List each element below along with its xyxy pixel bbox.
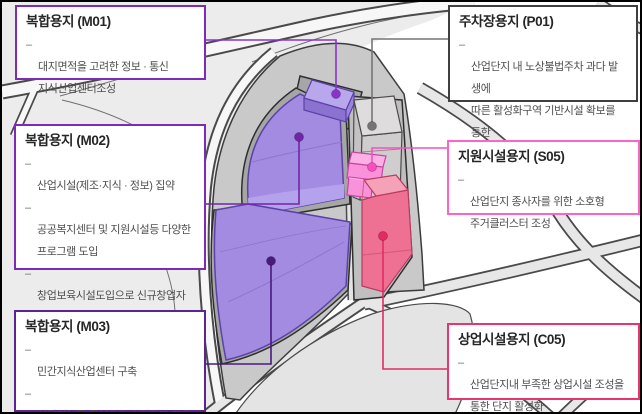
callout-m01-title: 복합용지 (M01): [26, 12, 195, 31]
callout-m02-item: –공공복지센터 및 지원시설등 다양한 프로그램 도입: [25, 197, 195, 263]
callout-s05-item: –산업단지 종사자를 위한 소호형 주거클러스터 조성: [458, 169, 629, 235]
callout-s05-item-text: 산업단지 종사자를 위한 소호형 주거클러스터 조성: [470, 196, 604, 230]
dot-m03: [267, 257, 276, 266]
callout-c05-title: 상업시설용지 (C05): [458, 330, 629, 349]
dot-m02: [295, 133, 304, 142]
bullet-dash: –: [458, 169, 464, 191]
callout-m02-item-text: 공공복지센터 및 지원시설등 다양한 프로그램 도입: [37, 224, 191, 258]
callout-p01-title: 주차장용지 (P01): [459, 12, 627, 31]
callout-m01-item: –대지면적을 고려한 정보 · 통신 지식산업센터조성: [26, 34, 195, 100]
bullet-dash: –: [25, 153, 31, 175]
dot-m01: [332, 90, 341, 99]
bullet-dash: –: [25, 339, 31, 361]
bullet-dash: –: [25, 383, 31, 405]
callout-m02-item-text: 산업시설(제조·지식 · 정보) 집약: [37, 180, 175, 192]
dot-c05: [379, 232, 388, 241]
callout-c05: 상업시설용지 (C05) –산업단지내 부족한 상업시설 조성을 통한 단지 활…: [447, 323, 640, 400]
callout-p01: 주차장용지 (P01) –산업단지 내 노상불법주차 과다 발생에 따른 활성화…: [448, 5, 638, 102]
callout-m02: 복합용지 (M02) –산업시설(제조·지식 · 정보) 집약 –공공복지센터 …: [14, 124, 206, 270]
callout-m03: 복합용지 (M03) –민간지식산업센터 구축 –산업기능을 중심으로 수익판매…: [14, 310, 206, 412]
callout-m01-item-text: 대지면적을 고려한 정보 · 통신 지식산업센터조성: [38, 61, 169, 95]
callout-m03-item: –민간지식산업센터 구축: [25, 339, 195, 383]
callout-m03-item-text: 산업기능을 중심으로 수익판매 프로그램 도입: [37, 410, 191, 414]
diagram-canvas: 복합용지 (M01) –대지면적을 고려한 정보 · 통신 지식산업센터조성 복…: [0, 0, 642, 414]
bullet-dash: –: [458, 352, 464, 374]
callout-c05-item: –산업단지내 부족한 상업시설 조성을 통한 단지 활성화: [458, 352, 629, 414]
bullet-dash: –: [26, 34, 32, 56]
bullet-dash: –: [25, 263, 31, 285]
callout-m03-item: –산업기능을 중심으로 수익판매 프로그램 도입: [25, 383, 195, 414]
callout-s05-title: 지원시설용지 (S05): [458, 147, 629, 166]
callout-m03-item-text: 민간지식산업센터 구축: [37, 366, 137, 378]
callout-s05: 지원시설용지 (S05) –산업단지 종사자를 위한 소호형 주거클러스터 조성: [447, 140, 640, 215]
callout-c05-item-text: 산업단지내 부족한 상업시설 조성을 통한 단지 활성화: [470, 379, 624, 413]
callout-m02-item: –산업시설(제조·지식 · 정보) 집약: [25, 153, 195, 197]
bullet-dash: –: [459, 34, 465, 56]
bullet-dash: –: [25, 197, 31, 219]
callout-m01: 복합용지 (M01) –대지면적을 고려한 정보 · 통신 지식산업센터조성: [15, 5, 206, 80]
dot-s05: [368, 163, 377, 172]
callout-m02-title: 복합용지 (M02): [25, 131, 195, 150]
dot-p01: [368, 122, 377, 131]
callout-m03-title: 복합용지 (M03): [25, 317, 195, 336]
